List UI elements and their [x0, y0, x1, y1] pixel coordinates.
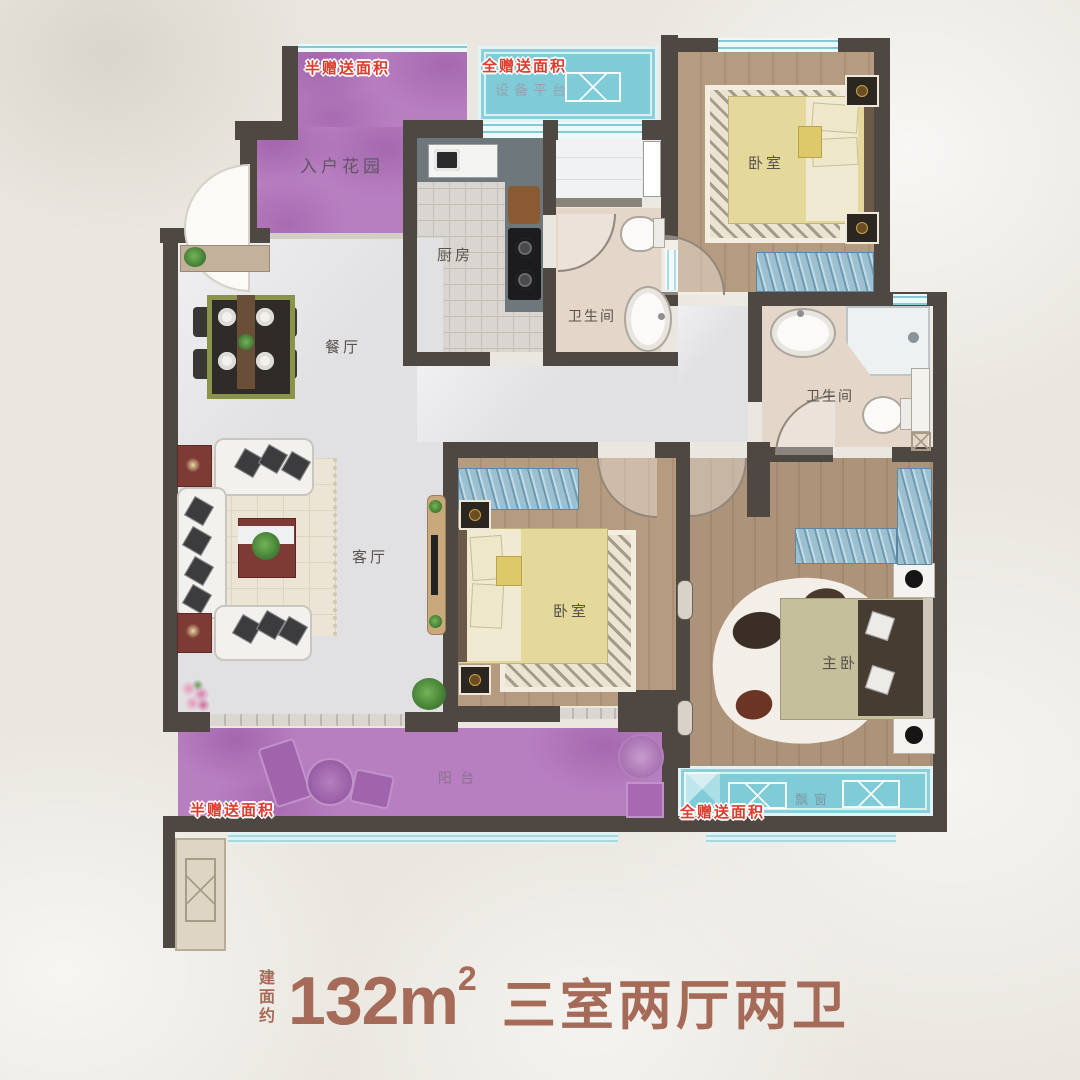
nightstand [845, 75, 879, 107]
burner [515, 270, 535, 290]
caption: 建面约 132m2 三室两厅两卫 [252, 962, 850, 1035]
caption-area-value: 132m [288, 963, 458, 1039]
living-balcony-threshold [210, 714, 405, 726]
sliding-door-panel [677, 700, 693, 736]
plate [218, 308, 236, 326]
wall [282, 46, 298, 127]
pillow-accent [798, 126, 822, 158]
gift-label-bottom-right: 全赠送面积 [680, 801, 765, 822]
console-plant [184, 247, 206, 267]
caption-layout: 三室两厅两卫 [502, 979, 850, 1033]
cabinet-ornament [186, 624, 200, 638]
window [483, 122, 543, 138]
wall [403, 123, 417, 366]
bedroom-balcony-threshold [560, 708, 618, 719]
headboard [864, 94, 874, 224]
room-label-bedroom-mid: 卧室 [553, 600, 589, 621]
room-label-kitchen: 厨房 [437, 244, 473, 265]
plate [256, 352, 274, 370]
gift-label-top-left: 半赠送面积 [305, 57, 390, 78]
bedroom-top-bench [756, 252, 874, 292]
shower-head [908, 332, 919, 343]
headboard [458, 528, 467, 662]
room-label-bath-master: 卫生间 [806, 386, 854, 406]
nightstand [845, 212, 879, 244]
room-label-entry-garden: 入户花园 [300, 152, 384, 177]
bay-window-icon [842, 780, 900, 808]
toilet-top-tank [653, 218, 665, 248]
room-label-bath-top: 卫生间 [568, 306, 616, 326]
console-plant [429, 500, 442, 513]
window [558, 122, 642, 138]
bath-cabinet [911, 368, 930, 432]
lamp [905, 726, 923, 744]
window-sill [228, 832, 618, 844]
window-sill [706, 832, 896, 844]
wall [618, 690, 676, 732]
wall [747, 442, 770, 517]
caption-area-sup: 2 [458, 960, 476, 998]
wall [163, 238, 178, 720]
lamp [905, 570, 923, 588]
platform-window-icon [565, 72, 621, 102]
wall [443, 706, 560, 722]
nightstand [459, 500, 491, 530]
room-label-bay-window: 飘窗 [795, 789, 833, 808]
tv [431, 535, 438, 595]
wall [163, 820, 175, 948]
headboard [923, 596, 933, 720]
wall [933, 305, 947, 818]
room-label-living: 客厅 [352, 546, 388, 567]
burner [515, 238, 535, 258]
pillow [470, 583, 504, 629]
wall [235, 121, 298, 140]
plate [218, 352, 236, 370]
plate [256, 308, 274, 326]
balcony-mat [626, 782, 664, 818]
wall [655, 442, 676, 458]
garden-step-line [257, 233, 403, 239]
window [718, 38, 838, 52]
wall [543, 352, 678, 366]
room-label-dining: 餐厅 [325, 336, 361, 357]
sink-top [624, 286, 672, 352]
master-bay-seat [897, 468, 932, 565]
laundry-floor [556, 135, 642, 198]
faucet [658, 313, 665, 320]
stairwell-window-icon [185, 858, 216, 922]
wall [543, 123, 556, 215]
console-plant [429, 615, 442, 628]
pillow-accent [496, 556, 522, 586]
cutting-board [508, 186, 540, 224]
corridor-floor-2 [678, 306, 748, 442]
toilet-master [862, 396, 904, 434]
kitchen-sink-basin [434, 149, 460, 171]
room-label-equipment-platform: 设备平台 [495, 80, 571, 100]
sliding-door-panel [677, 580, 693, 620]
wall [403, 352, 490, 366]
wall [556, 198, 642, 207]
wall [163, 816, 947, 832]
room-label-master-bedroom: 主卧 [822, 652, 858, 673]
faucet [797, 310, 804, 317]
laundry-cabinet [643, 141, 661, 197]
master-bench [795, 528, 897, 564]
window [893, 294, 927, 305]
gift-label-bottom-left: 半赠送面积 [190, 799, 275, 820]
room-label-balcony: 阳台 [438, 768, 482, 788]
wall [163, 712, 210, 732]
caption-prefix: 建面约 [252, 969, 276, 1031]
nightstand [459, 665, 491, 695]
cabinet-ornament [186, 458, 200, 472]
entry-garden-floor-lower [257, 127, 403, 238]
flowers [178, 678, 214, 714]
window [298, 44, 467, 52]
coffee-table-plant [252, 532, 280, 560]
centerpiece [238, 334, 254, 350]
potted-plant [412, 678, 446, 710]
balcony-basin [618, 734, 664, 780]
wall [443, 442, 598, 458]
bath-window-icon [911, 432, 931, 451]
wall [748, 292, 762, 402]
gift-label-top-center: 全赠送面积 [482, 55, 567, 76]
room-label-bedroom-top: 卧室 [748, 152, 784, 173]
floor-plan-poster: 半赠送面积 全赠送面积 半赠送面积 全赠送面积 设备平台 入户花园 厨房 卫生间… [0, 0, 1080, 1080]
balcony-table [306, 758, 354, 806]
